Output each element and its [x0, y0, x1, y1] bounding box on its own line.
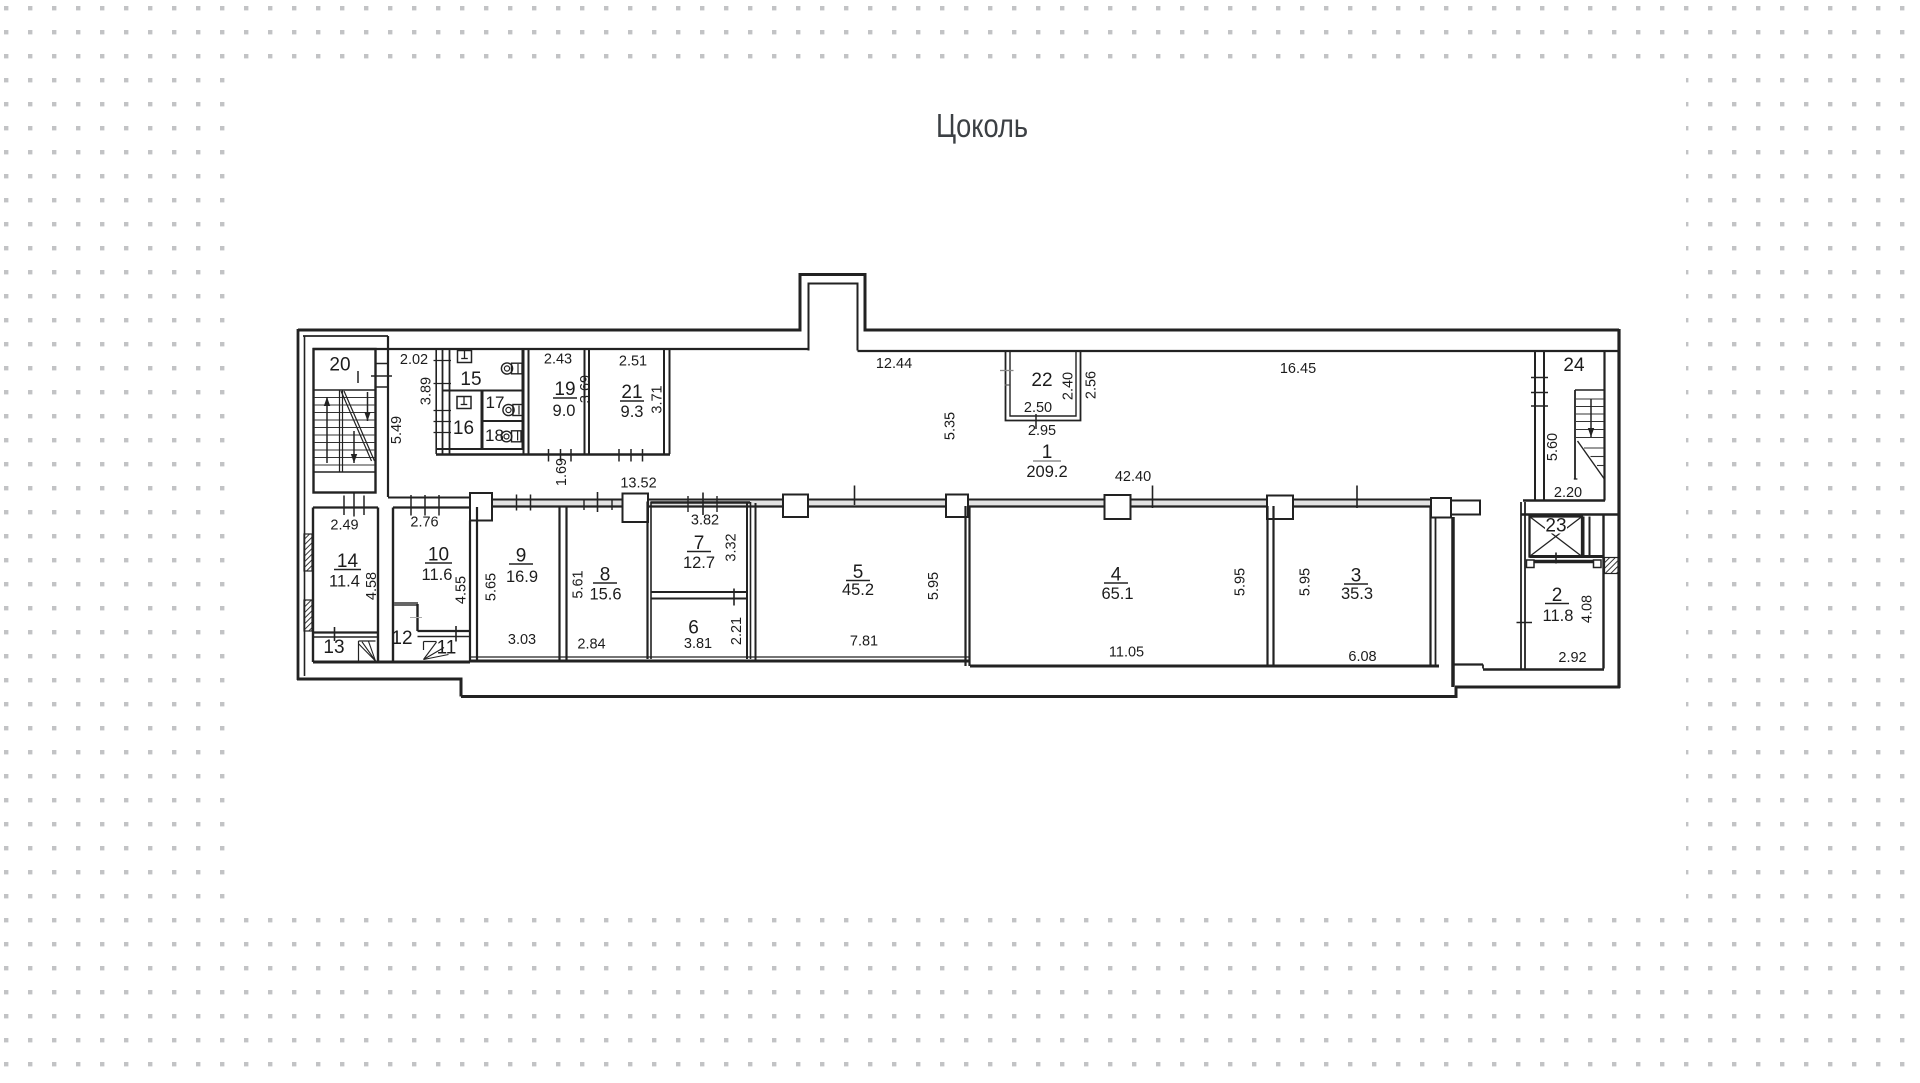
svg-text:3.89: 3.89	[419, 377, 435, 405]
svg-text:11.8: 11.8	[1543, 607, 1574, 625]
svg-text:4.55: 4.55	[454, 576, 470, 604]
svg-text:5.95: 5.95	[1298, 568, 1314, 596]
svg-text:11.4: 11.4	[329, 573, 360, 591]
svg-text:2.56: 2.56	[1084, 371, 1100, 399]
svg-text:24: 24	[1563, 355, 1585, 376]
svg-text:209.2: 209.2	[1026, 463, 1067, 481]
svg-text:3.03: 3.03	[508, 632, 536, 648]
svg-text:15.6: 15.6	[589, 586, 621, 604]
svg-text:4.58: 4.58	[364, 572, 380, 600]
svg-text:22: 22	[1031, 370, 1052, 391]
svg-text:Цоколь: Цоколь	[936, 107, 1028, 144]
svg-text:12.44: 12.44	[876, 356, 912, 372]
svg-text:20: 20	[329, 355, 350, 376]
svg-text:5.65: 5.65	[484, 573, 500, 601]
svg-text:15: 15	[460, 369, 481, 390]
svg-text:12.7: 12.7	[683, 554, 715, 572]
svg-text:3.32: 3.32	[724, 533, 740, 561]
svg-text:65.1: 65.1	[1101, 585, 1133, 603]
svg-text:1.69: 1.69	[554, 458, 570, 486]
svg-text:13.52: 13.52	[620, 476, 656, 492]
svg-text:2.21: 2.21	[729, 617, 745, 645]
svg-text:1: 1	[1042, 442, 1053, 463]
svg-text:12: 12	[391, 628, 412, 649]
svg-text:2.76: 2.76	[410, 515, 438, 531]
svg-text:2.43: 2.43	[544, 352, 572, 368]
svg-text:5.61: 5.61	[571, 570, 587, 598]
svg-text:2.92: 2.92	[1558, 650, 1586, 666]
svg-text:13: 13	[323, 637, 344, 658]
svg-text:11.6: 11.6	[422, 566, 453, 584]
svg-text:6.08: 6.08	[1348, 649, 1376, 665]
svg-text:5.60: 5.60	[1545, 433, 1561, 461]
svg-text:5.95: 5.95	[1233, 568, 1249, 596]
svg-text:2.95: 2.95	[1028, 423, 1056, 439]
svg-text:45.2: 45.2	[842, 581, 874, 599]
svg-text:5.35: 5.35	[943, 412, 959, 440]
svg-text:2.49: 2.49	[330, 518, 358, 534]
svg-text:16.9: 16.9	[506, 568, 538, 586]
svg-text:19: 19	[554, 379, 575, 400]
svg-text:2.51: 2.51	[619, 354, 647, 370]
svg-text:21: 21	[621, 382, 642, 403]
svg-text:3.81: 3.81	[684, 636, 712, 652]
svg-text:17: 17	[486, 393, 505, 412]
svg-text:2.20: 2.20	[1554, 485, 1582, 501]
svg-text:5.49: 5.49	[389, 416, 405, 444]
svg-text:35.3: 35.3	[1341, 585, 1373, 603]
svg-text:2.02: 2.02	[400, 352, 428, 368]
svg-text:9.3: 9.3	[621, 403, 644, 421]
svg-text:23: 23	[1545, 516, 1566, 537]
svg-text:3.69: 3.69	[578, 375, 594, 403]
svg-text:3.82: 3.82	[691, 513, 719, 529]
svg-text:42.40: 42.40	[1115, 469, 1151, 485]
svg-text:9.0: 9.0	[553, 402, 576, 420]
svg-text:16.45: 16.45	[1280, 361, 1316, 377]
svg-text:4.08: 4.08	[1580, 595, 1596, 623]
svg-text:2.40: 2.40	[1061, 372, 1077, 400]
svg-text:7.81: 7.81	[850, 634, 878, 650]
svg-text:2.50: 2.50	[1024, 400, 1052, 416]
svg-text:11.05: 11.05	[1109, 645, 1144, 661]
svg-text:16: 16	[453, 418, 474, 439]
svg-text:2.84: 2.84	[577, 637, 605, 653]
svg-text:5.95: 5.95	[926, 572, 942, 600]
